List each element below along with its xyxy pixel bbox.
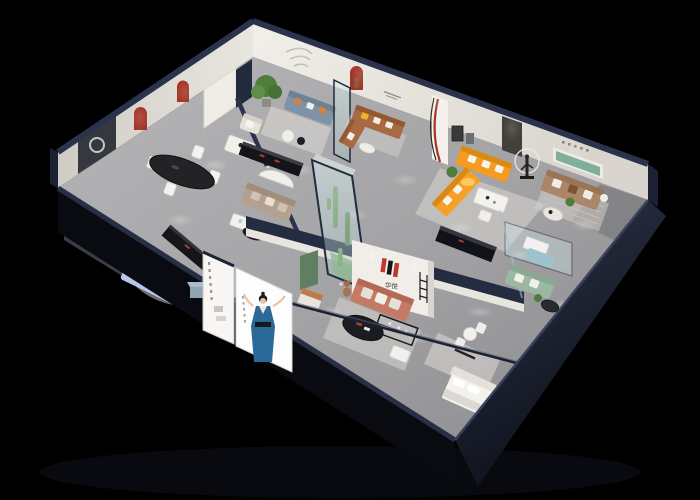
wall-end-cap: [50, 148, 58, 188]
side-table: [600, 194, 608, 202]
wall-spotlight: [367, 248, 377, 264]
pebble: [340, 283, 343, 286]
round-side-table: [282, 130, 294, 142]
showroom-render: 华悦: [0, 0, 700, 500]
potted-plant: [534, 294, 542, 302]
thumbnail: [216, 316, 226, 321]
green-wall-panel: [300, 250, 318, 290]
black-side-table: [297, 137, 305, 145]
wall-spotlight: [409, 260, 419, 276]
wall-end-cap: [648, 164, 658, 207]
framed-art: [466, 133, 474, 144]
potted-plant: [447, 167, 458, 178]
potted-plant: [566, 198, 575, 207]
base-shadow: [40, 446, 640, 498]
screen-panel: [203, 252, 234, 344]
framed-art: [452, 126, 463, 141]
isometric-floorplan-svg: 华悦: [0, 0, 700, 500]
thumbnail: [214, 306, 223, 312]
warm-floor-lamp-glow: [461, 178, 475, 186]
round-white-table: [464, 328, 477, 341]
